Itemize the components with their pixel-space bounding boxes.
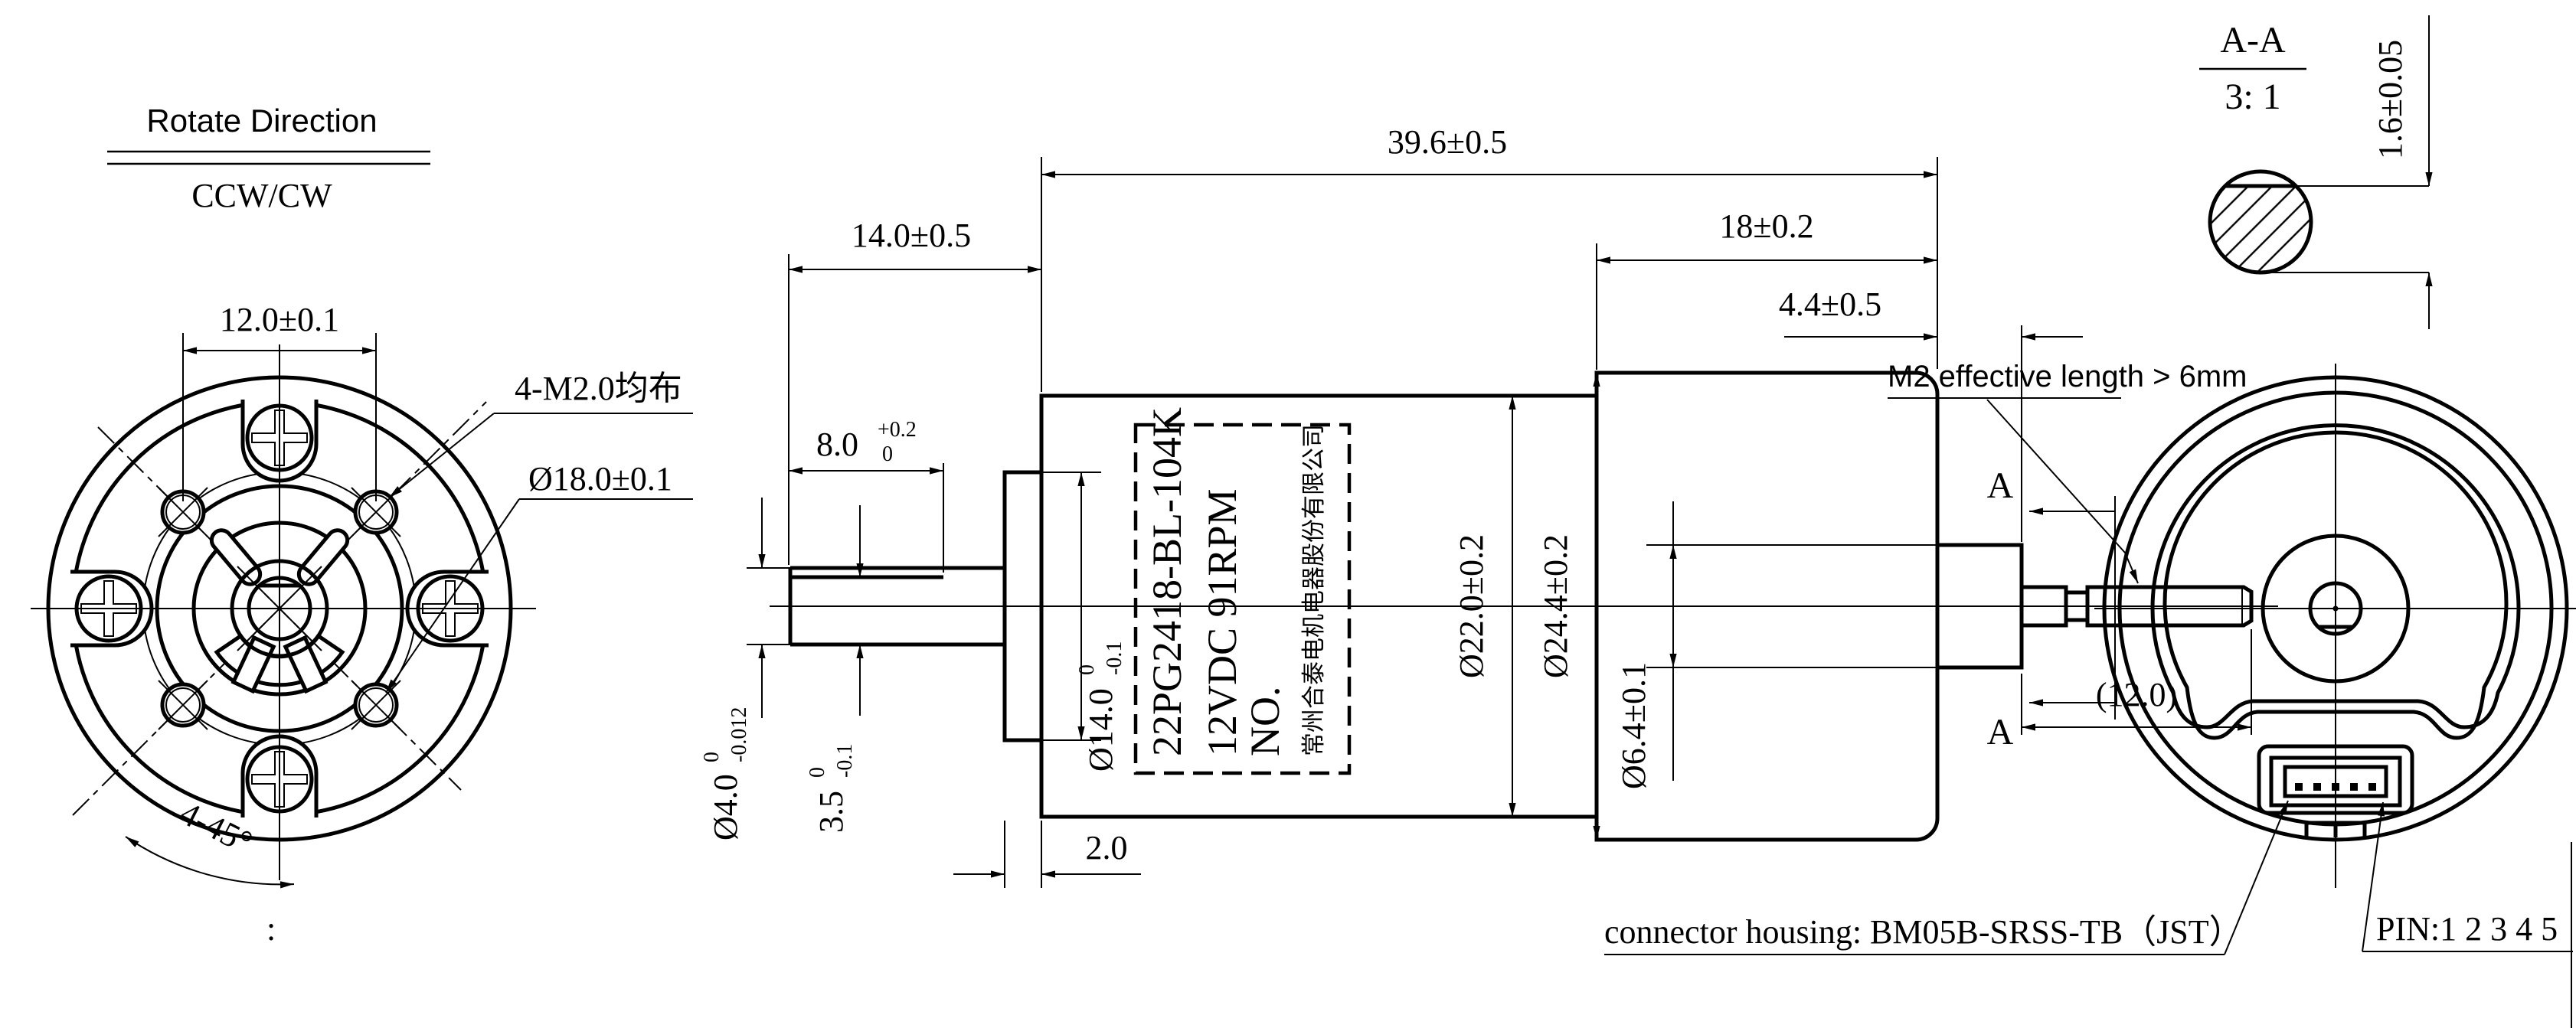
rotate-direction-block: Rotate Direction CCW/CW xyxy=(107,103,430,214)
pin-note-leader: PIN:1 2 3 4 5 xyxy=(2362,802,2573,951)
dim-rear-boss-dia: Ø6.4±0.1 xyxy=(1615,501,1936,789)
m2-note-leader: M2 effective length > 6mm xyxy=(1888,360,2247,583)
dim-flat-length: 8.0 +0.2 0 xyxy=(789,418,943,573)
connector-pin xyxy=(2313,783,2321,791)
dim-shaft-dia-tol-upper: 0 xyxy=(700,752,724,762)
dim-motor-length: 18±0.2 xyxy=(1597,207,1937,370)
dim-flat-height-tol-lower: -0.1 xyxy=(833,744,857,778)
dim-total-length: 39.6±0.5 xyxy=(1041,123,1937,392)
front-view: : 12.0±0.1 4-M2.0均布 Ø18.0±0.1 4-45° xyxy=(31,301,693,948)
dim-rear-boss-length: 4.4±0.5 xyxy=(1779,286,2083,542)
motor-label-line2: 12VDC 91RPM xyxy=(1199,488,1245,756)
dim-shaft-dia-label: Ø4.0 xyxy=(707,774,744,840)
motor-label-line3: NO. xyxy=(1242,687,1288,757)
motor-label-line1: 22PG2418-BL-104K xyxy=(1144,407,1190,756)
dim-hole-spacing-label: 12.0±0.1 xyxy=(220,301,339,338)
section-scale: 3: 1 xyxy=(2225,77,2280,117)
dim-motor-dia-label: Ø24.4±0.2 xyxy=(1537,534,1574,678)
drawing-sheet: Rotate Direction CCW/CW xyxy=(0,0,2576,1028)
connector-note-label: connector housing: BM05B-SRSS-TB（JST） xyxy=(1604,913,2243,951)
dim-flat-height-label: 3.5 xyxy=(812,791,850,833)
dim-flat-length-label: 8.0 xyxy=(816,426,858,463)
section-dim-label: 1.6±0.05 xyxy=(2372,40,2409,159)
side-view: 22PG2418-BL-104K 12VDC 91RPM NO. 常州合泰电机电… xyxy=(700,123,2278,888)
dim-gearbox-dia-label: Ø22.0±0.2 xyxy=(1453,534,1490,678)
dim-gearbox-length-label: 14.0±0.5 xyxy=(852,217,971,254)
dim-total-length-label: 39.6±0.5 xyxy=(1388,123,1507,161)
motor-label-line4: 常州合泰电机电器股份有限公司 xyxy=(1300,424,1327,756)
dim-motor-length-label: 18±0.2 xyxy=(1719,207,1813,245)
dim-bolt-circle-label: Ø18.0±0.1 xyxy=(528,460,672,498)
connector-pin xyxy=(2295,783,2303,791)
screw-note-label: 4-M2.0均布 xyxy=(515,370,682,407)
dim-shaft-dia-tol-lower: -0.012 xyxy=(727,707,751,762)
dim-rear-boss-dia-label: Ø6.4±0.1 xyxy=(1615,662,1652,789)
dim-pilot-dia: Ø14.0 0 -0.1 xyxy=(1041,472,1126,772)
m2-hole-bottom-right xyxy=(351,680,400,729)
dim-rear-boss-length-label: 4.4±0.5 xyxy=(1779,286,1881,323)
dim-flat-length-tol-upper: +0.2 xyxy=(878,418,917,442)
m2-hole-bottom-left xyxy=(159,680,208,729)
section-mark-bottom: A xyxy=(1987,712,2014,752)
dim-flange-width-label: 2.0 xyxy=(1086,829,1128,866)
dim-pilot-dia-tol-lower: -0.1 xyxy=(1103,641,1126,675)
dim-flat-height: 3.5 0 -0.1 xyxy=(806,505,860,833)
m2-note-label: M2 effective length > 6mm xyxy=(1888,360,2247,393)
section-mark-top: A xyxy=(1987,465,2014,506)
connector-pin xyxy=(2368,783,2376,791)
dim-pilot-dia-tol-upper: 0 xyxy=(1075,664,1099,675)
centerline-colon: : xyxy=(266,910,276,948)
dim-shaft-dia: Ø4.0 0 -0.012 xyxy=(700,498,790,840)
dim-rear-shaft-length: (12.0) xyxy=(2022,629,2251,735)
rotate-direction-value: CCW/CW xyxy=(191,177,332,214)
connector-note-leader: connector housing: BM05B-SRSS-TB（JST） xyxy=(1604,801,2288,955)
connector-pin xyxy=(2350,783,2358,791)
dim-flat-length-tol-lower: 0 xyxy=(882,442,893,466)
section-aa-view: A-A 3: 1 1.6±0.05 xyxy=(2199,15,2429,329)
pin-note-label: PIN:1 2 3 4 5 xyxy=(2376,910,2558,948)
dim-pilot-dia-label: Ø14.0 xyxy=(1082,688,1120,772)
rear-view: connector housing: BM05B-SRSS-TB（JST） PI… xyxy=(1604,364,2576,1028)
engineering-drawing: Rotate Direction CCW/CW xyxy=(0,0,2576,1028)
section-title: A-A xyxy=(2220,20,2286,60)
dim-flange-width: 2.0 xyxy=(953,821,1141,888)
rotate-direction-title: Rotate Direction xyxy=(146,103,377,139)
dim-flat-height-tol-upper: 0 xyxy=(806,767,829,778)
